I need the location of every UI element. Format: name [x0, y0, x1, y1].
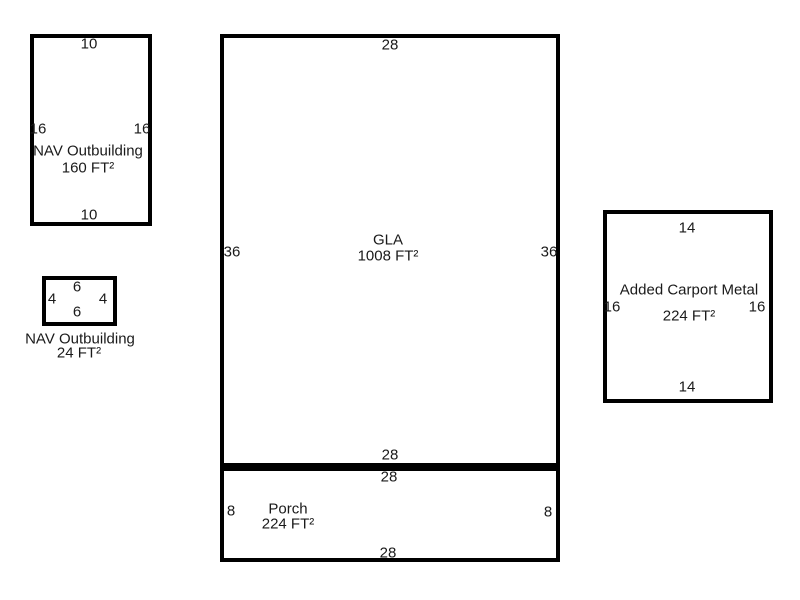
nav-outbuilding-24-dim-left: 4: [48, 292, 56, 307]
nav-outbuilding-160-dim-bottom: 10: [81, 208, 98, 223]
gla-dim-left: 36: [224, 245, 241, 260]
carport-dim-bottom: 14: [679, 380, 696, 395]
porch-dim-bottom: 28: [380, 546, 397, 561]
carport-name-label: Added Carport Metal: [620, 283, 758, 298]
porch-dim-right: 8: [544, 505, 552, 520]
carport-dim-left: 16: [604, 300, 621, 315]
nav-outbuilding-160-dim-right: 16: [134, 122, 151, 137]
gla-area-label: 1008 FT²: [358, 249, 419, 264]
nav-outbuilding-24-dim-right: 4: [99, 292, 107, 307]
gla-dim-top: 28: [382, 38, 399, 53]
nav-outbuilding-24-dim-top: 6: [73, 280, 81, 295]
porch-dim-left: 8: [227, 504, 235, 519]
carport-dim-top: 14: [679, 221, 696, 236]
carport-outline: [603, 210, 773, 403]
property-sketch-canvas: 10 16 16 NAV Outbuilding 160 FT² 10 6 4 …: [0, 0, 800, 600]
porch-name-label: Porch: [268, 502, 307, 517]
nav-outbuilding-160-dim-top: 10: [81, 37, 98, 52]
nav-outbuilding-160-dim-left: 16: [30, 122, 47, 137]
gla-dim-right: 36: [541, 245, 558, 260]
carport-dim-right: 16: [749, 300, 766, 315]
porch-area-label: 224 FT²: [262, 517, 315, 532]
carport-area-label: 224 FT²: [663, 309, 716, 324]
gla-dim-bottom: 28: [382, 448, 399, 463]
nav-outbuilding-160-area-label: 160 FT²: [62, 161, 115, 176]
nav-outbuilding-24-dim-bottom: 6: [73, 305, 81, 320]
gla-name-label: GLA: [373, 233, 403, 248]
porch-dim-top: 28: [381, 470, 398, 485]
nav-outbuilding-160-name-label: NAV Outbuilding: [33, 144, 143, 159]
nav-outbuilding-24-area-label: 24 FT²: [57, 346, 101, 361]
